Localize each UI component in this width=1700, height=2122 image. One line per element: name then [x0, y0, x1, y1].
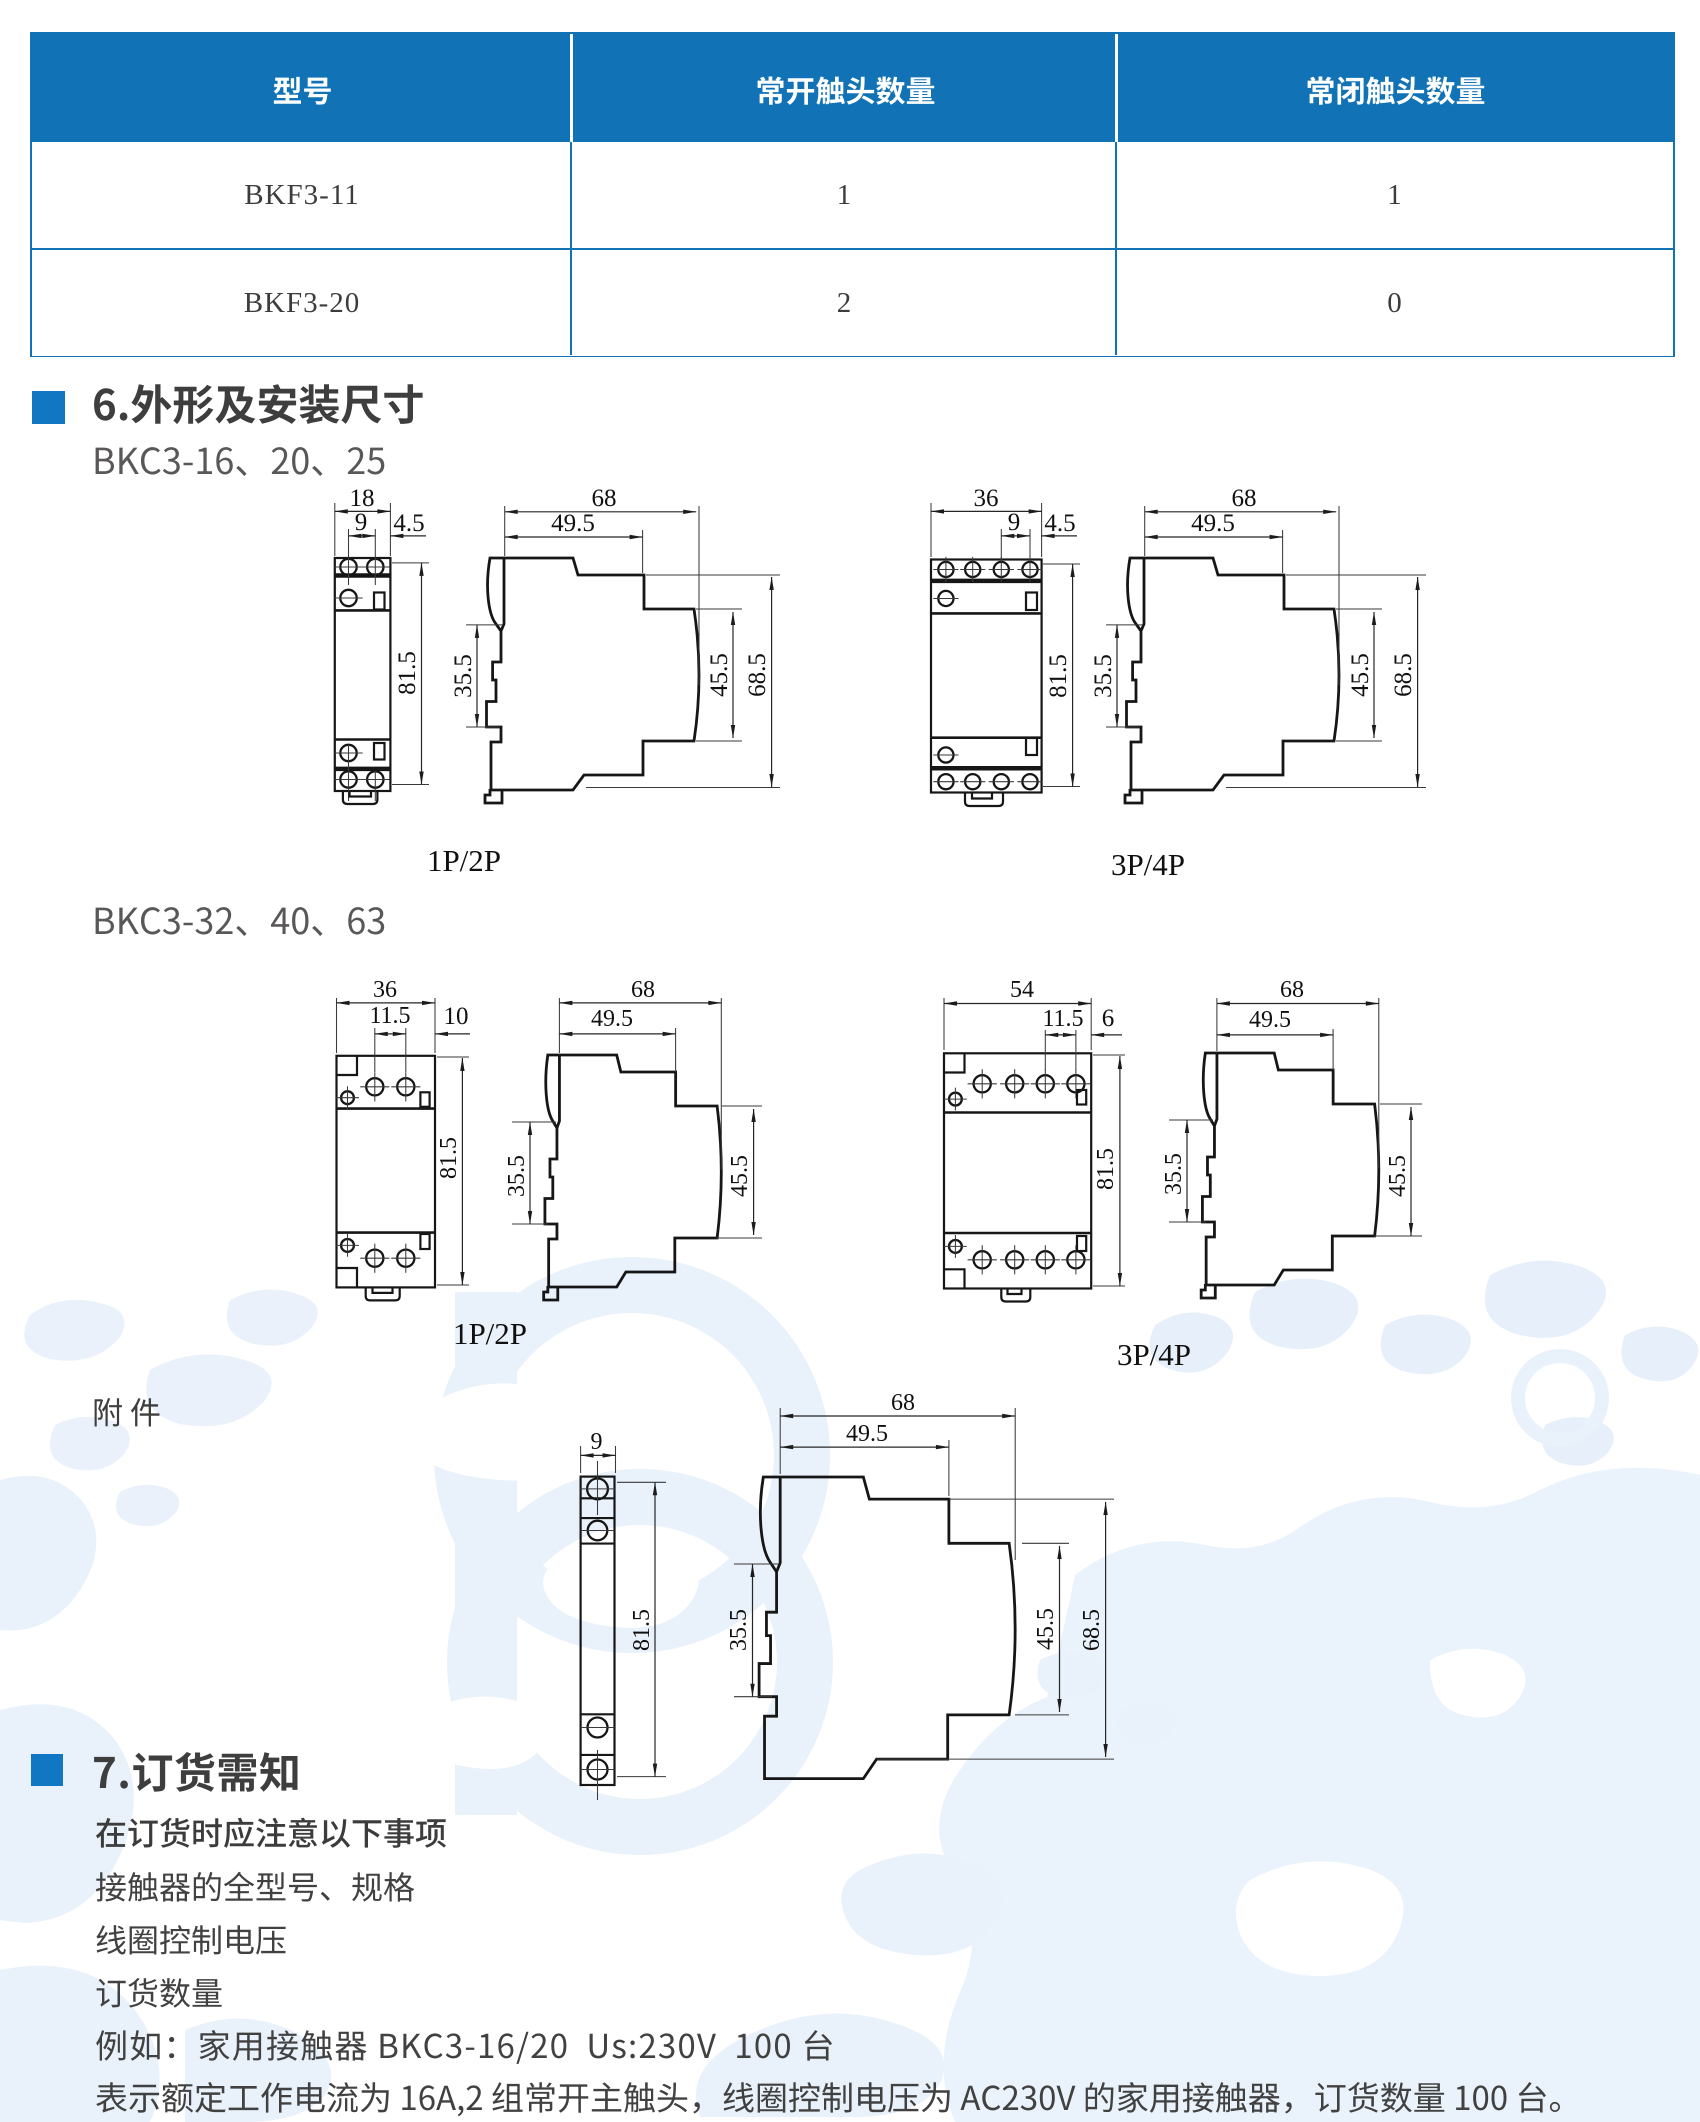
svg-text:49.5: 49.5 — [551, 510, 595, 537]
svg-text:35.5: 35.5 — [1090, 654, 1117, 698]
svg-text:81.5: 81.5 — [1093, 1148, 1119, 1190]
svg-text:45.5: 45.5 — [1033, 1608, 1059, 1650]
svg-text:49.5: 49.5 — [1249, 1007, 1291, 1033]
svg-text:81.5: 81.5 — [629, 1609, 655, 1651]
svg-text:45.5: 45.5 — [727, 1155, 753, 1197]
svg-text:68: 68 — [631, 977, 655, 1003]
svg-text:68.5: 68.5 — [744, 653, 771, 697]
svg-text:1P/2P: 1P/2P — [427, 843, 501, 878]
svg-text:3P/4P: 3P/4P — [1117, 1337, 1191, 1372]
svg-text:4.5: 4.5 — [393, 510, 424, 537]
svg-text:68: 68 — [592, 485, 617, 512]
svg-text:81.5: 81.5 — [1045, 654, 1072, 698]
svg-text:68.5: 68.5 — [1079, 1609, 1105, 1651]
svg-text:11.5: 11.5 — [1042, 1006, 1083, 1032]
svg-text:68: 68 — [1232, 485, 1257, 512]
svg-text:45.5: 45.5 — [1347, 653, 1374, 697]
svg-text:1P/2P: 1P/2P — [453, 1316, 527, 1351]
svg-text:36: 36 — [974, 485, 999, 512]
svg-text:49.5: 49.5 — [846, 1421, 888, 1447]
svg-text:36: 36 — [373, 977, 397, 1003]
svg-text:68: 68 — [1280, 977, 1304, 1003]
svg-text:49.5: 49.5 — [591, 1006, 633, 1032]
svg-text:68: 68 — [891, 1390, 915, 1416]
svg-text:49.5: 49.5 — [1191, 510, 1235, 537]
svg-text:3P/4P: 3P/4P — [1111, 847, 1185, 882]
svg-text:35.5: 35.5 — [450, 654, 477, 698]
svg-text:9: 9 — [355, 509, 368, 536]
svg-text:81.5: 81.5 — [436, 1137, 462, 1179]
svg-text:10: 10 — [444, 1003, 469, 1030]
svg-text:4.5: 4.5 — [1044, 510, 1075, 537]
svg-text:9: 9 — [1008, 509, 1021, 536]
svg-text:68.5: 68.5 — [1390, 653, 1417, 697]
svg-text:9: 9 — [591, 1429, 603, 1455]
svg-text:11.5: 11.5 — [369, 1003, 410, 1029]
svg-text:18: 18 — [350, 485, 375, 512]
svg-text:54: 54 — [1010, 977, 1034, 1003]
svg-text:35.5: 35.5 — [726, 1609, 752, 1651]
svg-text:35.5: 35.5 — [1161, 1153, 1187, 1195]
svg-text:45.5: 45.5 — [706, 653, 733, 697]
svg-text:6: 6 — [1102, 1005, 1115, 1032]
svg-text:35.5: 35.5 — [504, 1155, 530, 1197]
svg-text:45.5: 45.5 — [1385, 1155, 1411, 1197]
svg-text:81.5: 81.5 — [394, 651, 421, 695]
